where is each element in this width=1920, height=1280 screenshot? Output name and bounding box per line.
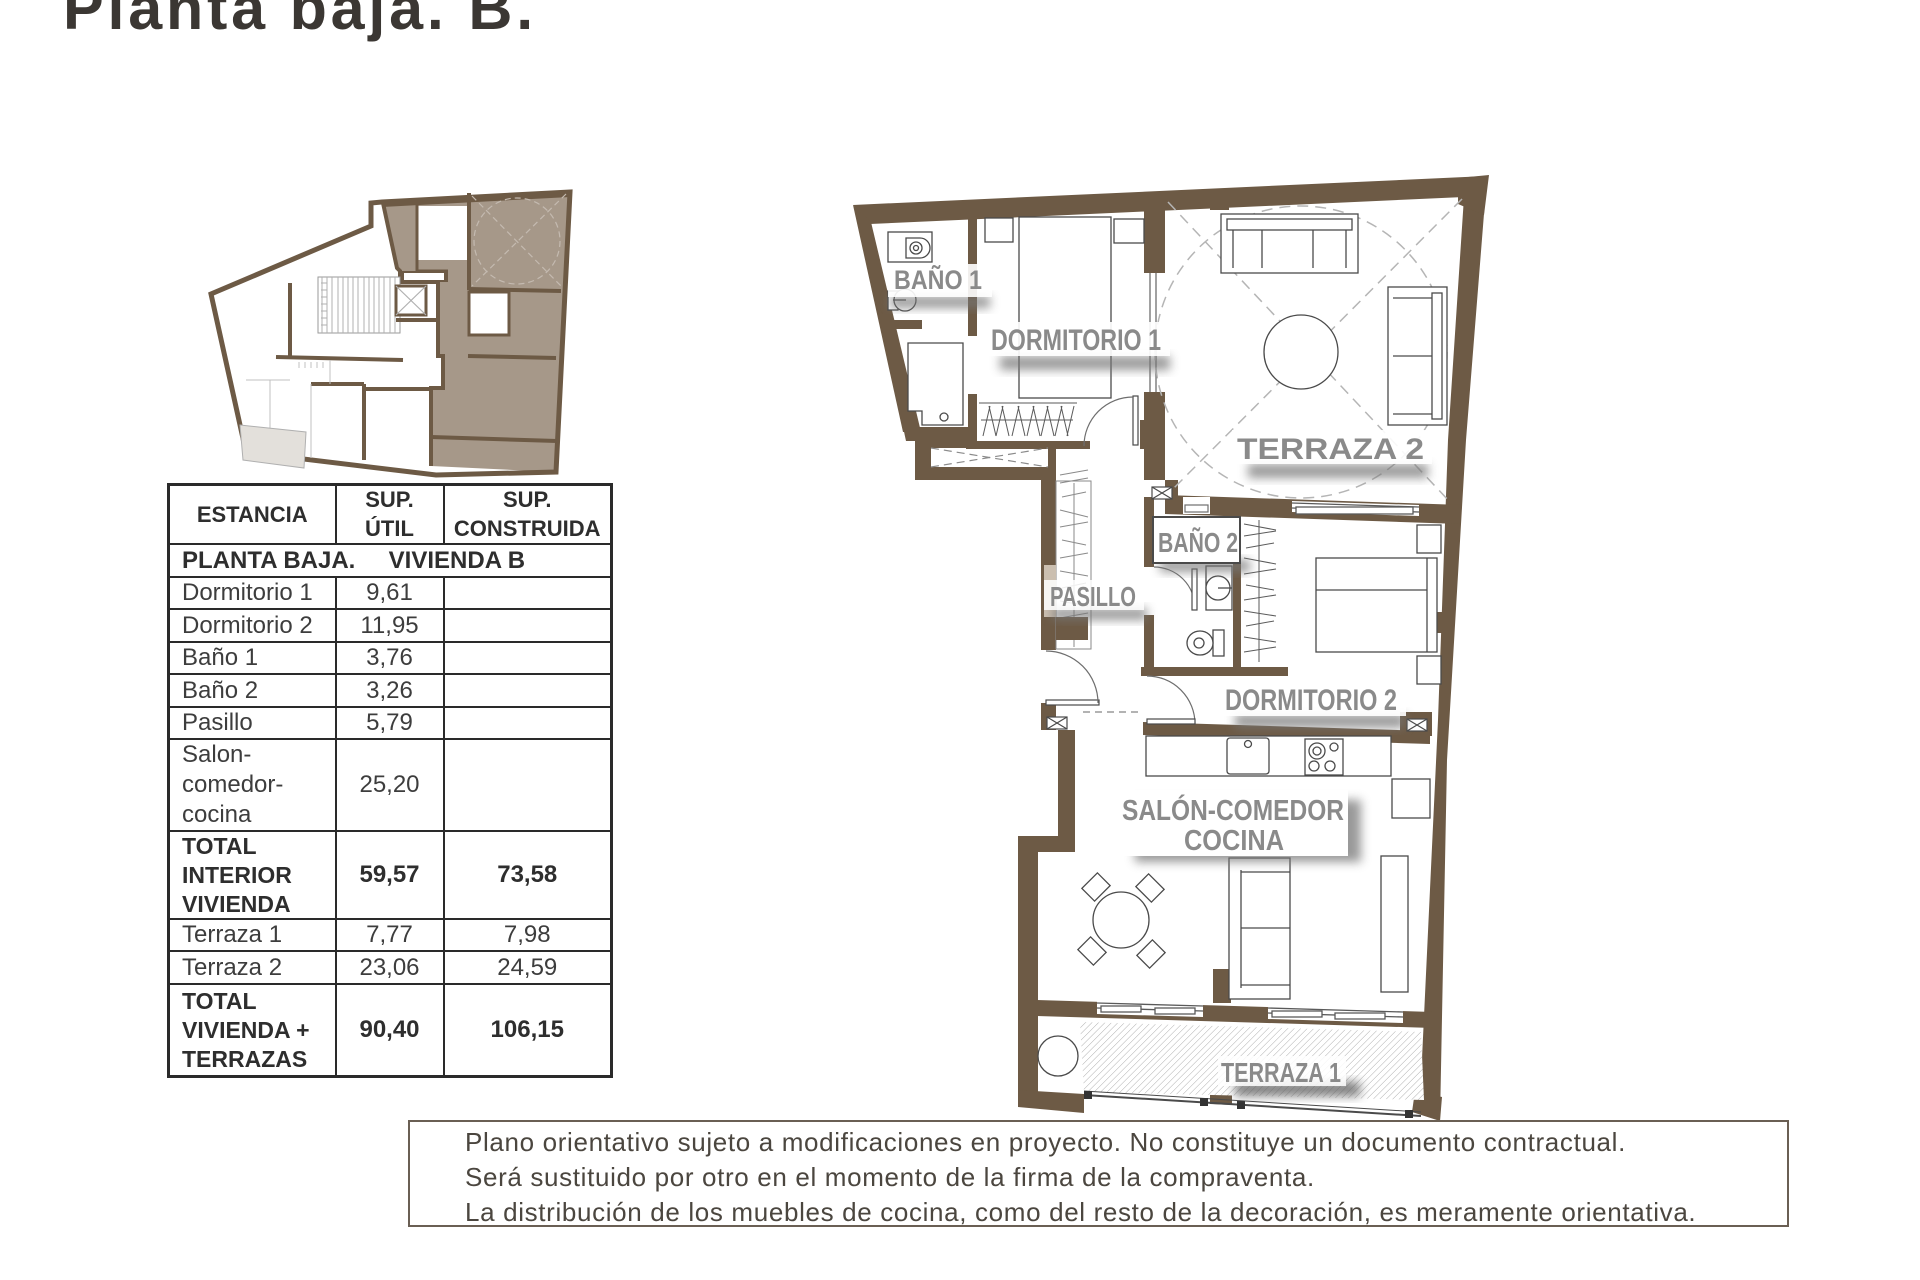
svg-text:PASILLO: PASILLO [1050,581,1136,612]
svg-text:TERRAZA 2: TERRAZA 2 [1237,433,1424,466]
svg-text:SALÓN-COMEDOR: SALÓN-COMEDOR [1122,793,1344,827]
svg-text:TERRAZA 1: TERRAZA 1 [1221,1057,1341,1088]
svg-text:BAÑO 1: BAÑO 1 [894,264,982,295]
svg-text:DORMITORIO 1: DORMITORIO 1 [991,324,1161,357]
svg-text:BAÑO 2: BAÑO 2 [1158,527,1238,558]
svg-text:COCINA: COCINA [1184,825,1284,857]
svg-text:DORMITORIO 2: DORMITORIO 2 [1225,684,1397,717]
